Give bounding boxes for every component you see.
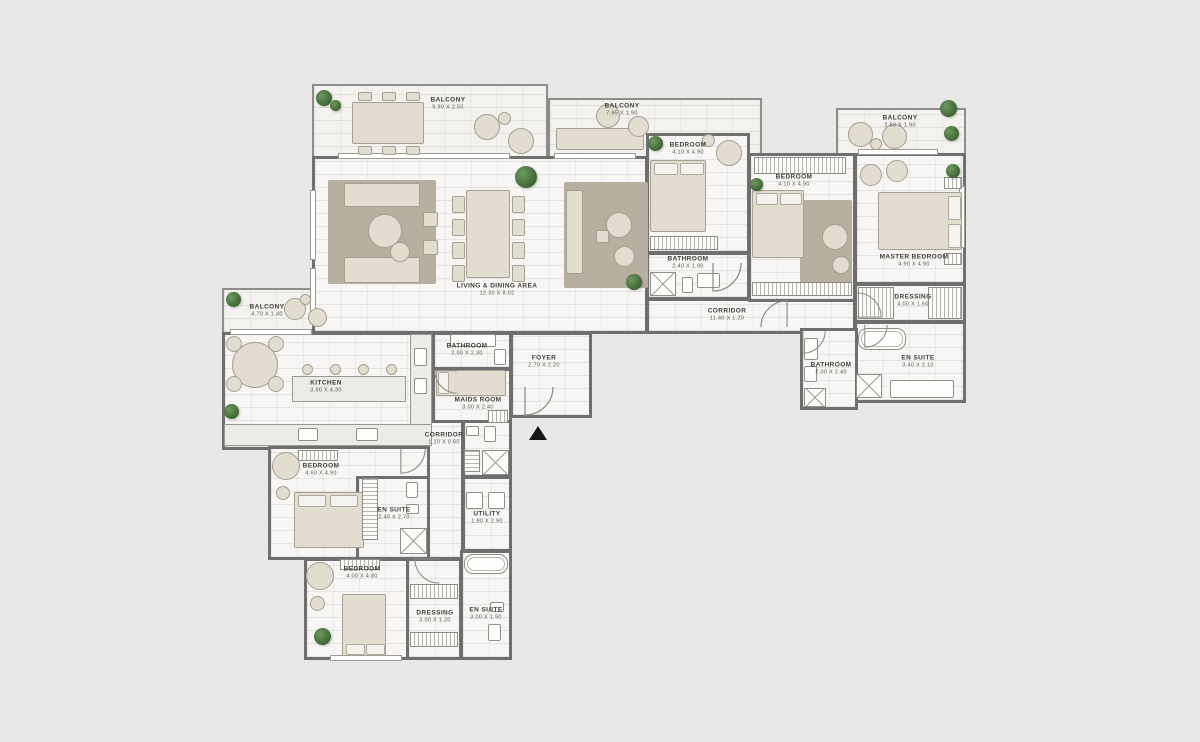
toilet [406, 482, 418, 498]
room-dims: 2.70 X 2.20 [528, 363, 559, 371]
wardrobe [752, 282, 852, 296]
chair [452, 196, 465, 213]
room-dims: 1.10 X 0.60 [425, 440, 464, 448]
room-label-balcony-top-left: BALCONY9.90 X 2.50 [431, 95, 466, 112]
chair [406, 92, 420, 101]
room-label-dressing-bottom: DRESSING3.00 X 1.20 [416, 608, 453, 625]
room-label-balcony-top-right: BALCONY2.60 X 1.90 [883, 113, 918, 130]
room-label-bathroom-middle: BATHROOM2.00 X 2.30 [447, 341, 488, 358]
window [230, 329, 312, 335]
wardrobe [410, 584, 458, 599]
room-label-bathroom-1: BATHROOM2.40 X 1.90 [668, 254, 709, 271]
chair [226, 376, 242, 392]
door-master-bedroom [856, 292, 882, 318]
armchair [272, 452, 300, 480]
pillow [298, 495, 326, 507]
shower [856, 374, 882, 398]
basin [466, 426, 479, 436]
room-label-ensuite-master: EN SUITE3.40 X 2.10 [901, 353, 934, 370]
door-bedroom-1 [712, 262, 742, 292]
room-label-bedroom-bottom: BEDROOM4.00 X 4.80 [344, 564, 381, 581]
armchair [860, 164, 882, 186]
room-name: DRESSING [416, 609, 453, 616]
plant-icon [940, 100, 957, 117]
side-table [498, 112, 511, 125]
room-name: BATHROOM [668, 255, 709, 262]
room-name: FOYER [532, 354, 556, 361]
pouf [614, 246, 635, 267]
room-dims: 3.00 X 1.90 [469, 615, 502, 623]
side-table [870, 138, 882, 150]
room-name: BEDROOM [344, 565, 381, 572]
chair [512, 219, 525, 236]
door-bathroom-right [802, 330, 826, 354]
lounge-chair [628, 116, 649, 137]
room-dims: 4.10 X 4.90 [670, 150, 707, 158]
pillow [780, 193, 802, 205]
shower [804, 388, 826, 407]
window [310, 190, 316, 260]
cooktop [414, 378, 427, 394]
side-table [596, 230, 609, 243]
room-label-maids-room: MAIDS ROOM3.00 X 2.40 [455, 395, 502, 412]
dryer [488, 492, 505, 509]
room-label-bedroom-2: BEDROOM4.10 X 4.90 [776, 172, 813, 189]
sofa [566, 190, 583, 274]
toilet [484, 426, 496, 442]
room-name: BATHROOM [811, 361, 852, 368]
plant-icon [515, 166, 537, 188]
kitchen-counter [224, 424, 432, 446]
room-dims: 2.00 X 2.40 [811, 370, 852, 378]
room-name: BATHROOM [447, 342, 488, 349]
window [554, 153, 636, 159]
chair [358, 92, 372, 101]
room-label-kitchen: KITCHEN3.90 X 4.30 [310, 378, 342, 395]
room-name: BALCONY [250, 303, 285, 310]
wardrobe [410, 632, 458, 647]
chair [358, 146, 372, 155]
door-foyer [524, 386, 554, 416]
chair [512, 196, 525, 213]
chair [512, 242, 525, 259]
side-table [423, 240, 438, 255]
room-dims: 2.60 X 1.90 [883, 123, 918, 131]
stool [330, 364, 341, 375]
chair [382, 92, 396, 101]
sofa [344, 257, 420, 283]
kitchen-sink [298, 428, 318, 441]
room-dims: 4.00 X 4.80 [344, 574, 381, 582]
washer [466, 492, 483, 509]
room-label-balcony-left: BALCONY4.70 X 1.40 [250, 302, 285, 319]
pillow [948, 196, 961, 220]
kitchen-sink [414, 348, 427, 366]
room-dims: 2.40 X 1.90 [668, 264, 709, 272]
chair [512, 265, 525, 282]
plant-icon [750, 178, 763, 191]
room-name: BALCONY [605, 102, 640, 109]
room-name: MASTER BEDROOM [880, 253, 949, 260]
door-maids-room [434, 370, 458, 394]
dining-table [466, 190, 510, 278]
entrance-arrow-icon [529, 426, 547, 440]
dresser [298, 450, 338, 461]
room-label-foyer: FOYER2.70 X 2.20 [528, 353, 559, 370]
room-label-utility: UTILITY1.80 X 2.90 [471, 509, 502, 526]
room-label-bathroom-right: BATHROOM2.00 X 2.40 [811, 360, 852, 377]
room-dims: 4.00 X 1.60 [894, 302, 931, 310]
chair [268, 336, 284, 352]
stool [302, 364, 313, 375]
nightstand [944, 177, 962, 189]
pillow [366, 644, 385, 655]
pillow [654, 163, 678, 175]
plant-icon [944, 126, 959, 141]
lounge-chair [308, 308, 327, 327]
toilet [682, 277, 693, 293]
pillow [330, 495, 358, 507]
pillow [948, 224, 961, 248]
shower [650, 272, 676, 296]
shower [400, 528, 427, 554]
room-name: CORRIDOR [708, 307, 747, 314]
armchair [606, 212, 632, 238]
room-name: BEDROOM [670, 141, 707, 148]
door-bedroom-bottom [414, 558, 440, 584]
room-name: BALCONY [431, 96, 466, 103]
room-name: CORRIDOR [425, 431, 464, 438]
room-dims: 4.10 X 4.90 [776, 182, 813, 190]
room-label-corridor-lower: CORRIDOR1.10 X 0.60 [425, 430, 464, 447]
sofa [344, 183, 420, 207]
outdoor-dining-table [352, 102, 424, 144]
chair [452, 219, 465, 236]
room-dims: 4.60 X 4.90 [303, 471, 340, 479]
kitchen-island [292, 376, 406, 402]
room-name: BEDROOM [776, 173, 813, 180]
room-name: DRESSING [894, 293, 931, 300]
room-dims: 12.30 X 8.02 [457, 291, 538, 299]
door-bedroom-2 [760, 300, 788, 328]
door-bedroom-left [400, 448, 426, 474]
chair [382, 146, 396, 155]
plant-icon [224, 404, 239, 419]
room-label-corridor-main: CORRIDOR11.40 X 1.20 [708, 306, 747, 323]
window [858, 149, 938, 155]
chair [452, 265, 465, 282]
pouf [832, 256, 850, 274]
wardrobe [928, 287, 962, 319]
room-name: BALCONY [883, 114, 918, 121]
room-label-bedroom-1: BEDROOM4.10 X 4.90 [670, 140, 707, 157]
room-dims: 3.40 X 2.10 [901, 363, 934, 371]
room-dims: 4.70 X 1.40 [250, 312, 285, 320]
armchair [306, 562, 334, 590]
room-dims: 9.90 X 2.50 [431, 105, 466, 113]
room-label-ensuite-left: EN SUITE2.40 X 2.70 [377, 505, 410, 522]
toilet [494, 349, 506, 365]
pillow [756, 193, 778, 205]
room-dims: 3.90 X 4.30 [310, 388, 342, 396]
room-dims: 2.00 X 2.30 [447, 351, 488, 359]
floor-plan: BALCONY9.90 X 2.50 BALCONY7.95 X 1.90 BA… [0, 0, 1200, 742]
side-table [300, 294, 311, 305]
toilet [488, 624, 501, 641]
room-label-master-bedroom: MASTER BEDROOM4.90 X 4.90 [880, 252, 949, 269]
pillow [680, 163, 704, 175]
chair [452, 242, 465, 259]
wardrobe [362, 478, 378, 540]
room-label-dressing-master: DRESSING4.00 X 1.60 [894, 292, 931, 309]
plant-icon [314, 628, 331, 645]
room-label-balcony-top-middle: BALCONY7.95 X 1.90 [605, 101, 640, 118]
plant-icon [226, 292, 241, 307]
chair [268, 376, 284, 392]
armchair [886, 160, 908, 182]
plant-icon [946, 164, 960, 178]
cooktop [356, 428, 378, 441]
plant-icon [626, 274, 642, 290]
side-table [423, 212, 438, 227]
stool [358, 364, 369, 375]
room-dims: 3.00 X 2.40 [455, 405, 502, 413]
room-label-ensuite-bottom: EN SUITE3.00 X 1.90 [469, 605, 502, 622]
double-vanity [890, 380, 954, 398]
armchair [716, 140, 742, 166]
pillow [346, 644, 365, 655]
armchair [822, 224, 848, 250]
coffee-table [390, 242, 410, 262]
chair [226, 336, 242, 352]
lounge-chair [508, 128, 534, 154]
room-name: KITCHEN [310, 379, 342, 386]
room-dims: 3.00 X 1.20 [416, 618, 453, 626]
room-name: EN SUITE [901, 354, 934, 361]
room-name: EN SUITE [469, 606, 502, 613]
room-dims: 7.95 X 1.90 [605, 111, 640, 119]
room-name: EN SUITE [377, 506, 410, 513]
stool [276, 486, 290, 500]
room-label-living-dining: LIVING & DINING AREA12.30 X 8.02 [457, 281, 538, 298]
bathtub [464, 554, 508, 574]
room-name: LIVING & DINING AREA [457, 282, 538, 289]
room-dims: 11.40 X 1.20 [708, 316, 747, 324]
room-name: UTILITY [473, 510, 500, 517]
room-name: MAIDS ROOM [455, 396, 502, 403]
stool [310, 596, 325, 611]
shower [482, 450, 509, 475]
plant-icon [330, 100, 341, 111]
plant-icon [648, 136, 663, 151]
stool [386, 364, 397, 375]
room-dims: 1.80 X 2.90 [471, 519, 502, 527]
room-dims: 2.40 X 2.70 [377, 515, 410, 523]
room-name: BEDROOM [303, 462, 340, 469]
door-ensuite-master [864, 324, 888, 348]
chair [406, 146, 420, 155]
cabinet [464, 450, 480, 472]
room-label-bedroom-left: BEDROOM4.60 X 4.90 [303, 461, 340, 478]
lounge-chair [474, 114, 500, 140]
room-dims: 4.90 X 4.90 [880, 262, 949, 270]
wardrobe [650, 236, 718, 250]
